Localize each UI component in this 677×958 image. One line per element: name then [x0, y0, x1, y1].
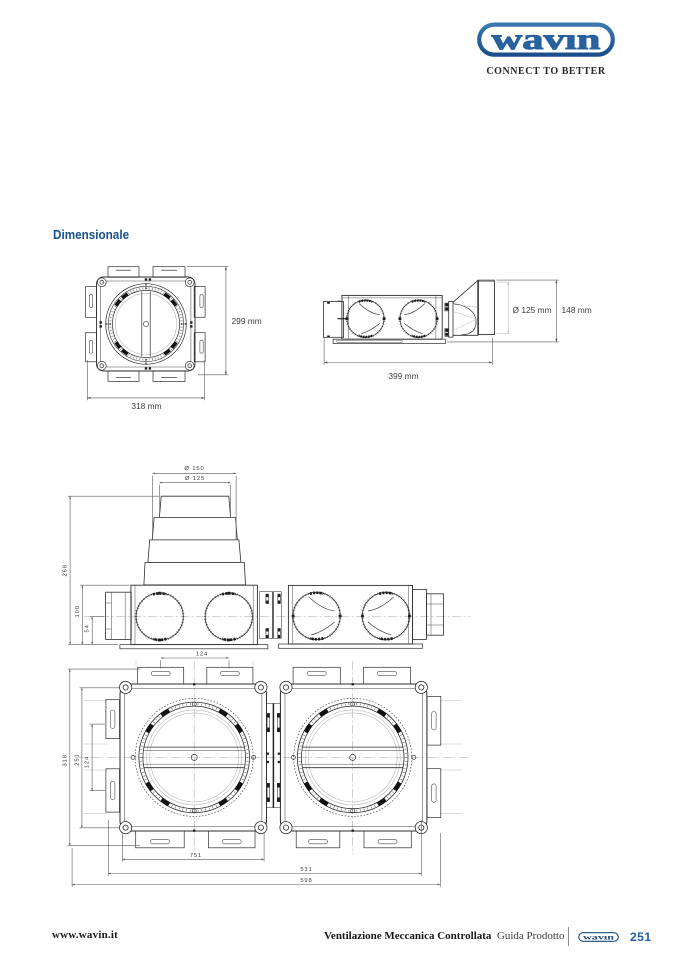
- svg-text:124: 124: [85, 756, 91, 768]
- svg-text:751: 751: [190, 853, 202, 859]
- svg-text:Ø 125 mm: Ø 125 mm: [513, 305, 552, 315]
- svg-text:318 mm: 318 mm: [131, 401, 161, 411]
- svg-text:251: 251: [75, 753, 81, 765]
- svg-text:299 mm: 299 mm: [232, 316, 262, 326]
- svg-text:Ø 150: Ø 150: [184, 466, 204, 472]
- svg-text:54: 54: [85, 624, 91, 632]
- svg-text:148 mm: 148 mm: [562, 305, 592, 315]
- svg-text:124: 124: [196, 652, 208, 658]
- svg-text:399 mm: 399 mm: [388, 371, 418, 381]
- svg-text:598: 598: [300, 878, 312, 884]
- svg-text:318: 318: [62, 754, 68, 766]
- svg-text:531: 531: [300, 867, 312, 873]
- svg-text:Ø 125: Ø 125: [185, 476, 205, 482]
- svg-text:268: 268: [63, 564, 69, 576]
- svg-text:wavın: wavın: [583, 932, 615, 941]
- svg-text:100: 100: [75, 605, 81, 617]
